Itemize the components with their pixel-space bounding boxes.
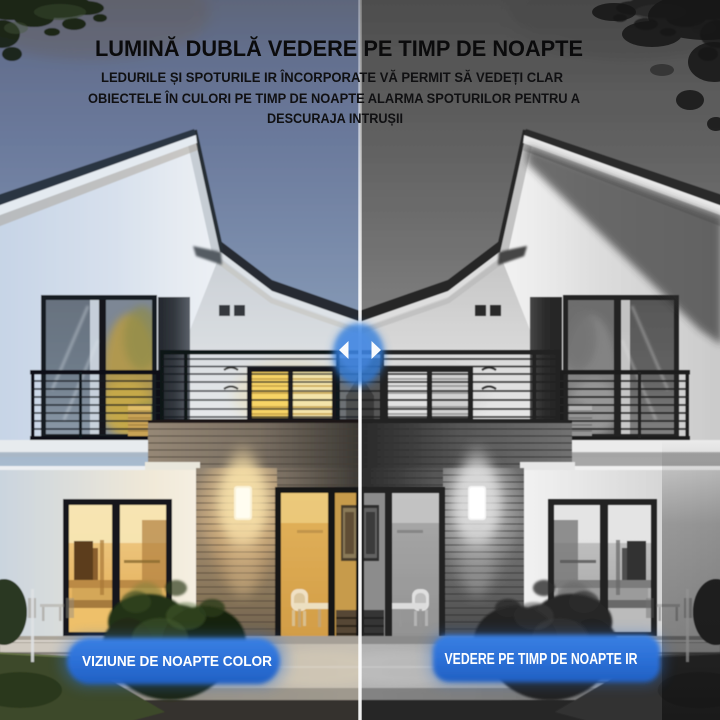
- svg-text:LUMINĂ DUBLĂ VEDERE PE TIMP DE: LUMINĂ DUBLĂ VEDERE PE TIMP DE NOAPTE: [95, 36, 583, 61]
- svg-text:VEDERE PE TIMP DE NOAPTE IR: VEDERE PE TIMP DE NOAPTE IR: [445, 651, 638, 668]
- svg-text:LEDURILE ȘI SPOTURILE IR ÎNCOR: LEDURILE ȘI SPOTURILE IR ÎNCORPORATE VĂ …: [101, 70, 563, 85]
- svg-text:OBIECTELE ÎN CULORI PE TIMP DE: OBIECTELE ÎN CULORI PE TIMP DE NOAPTE AL…: [88, 91, 580, 106]
- svg-text:DESCURAJA INTRUȘII: DESCURAJA INTRUȘII: [267, 111, 403, 126]
- svg-text:VIZIUNE DE NOAPTE COLOR: VIZIUNE DE NOAPTE COLOR: [82, 653, 272, 670]
